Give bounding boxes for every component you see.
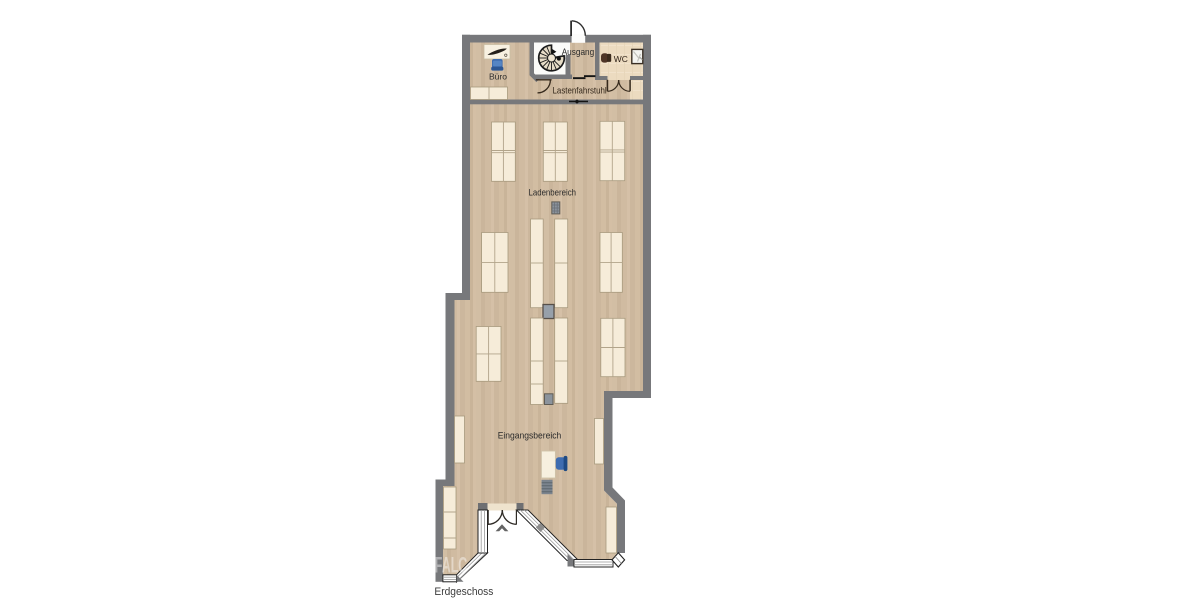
- svg-text:Ausgang: Ausgang: [562, 47, 595, 57]
- svg-text:FALC: FALC: [435, 553, 468, 578]
- svg-text:Erdgeschoss: Erdgeschoss: [434, 586, 493, 598]
- svg-text:Eingangsbereich: Eingangsbereich: [498, 430, 562, 440]
- svg-text:Lastenfahrstuhl: Lastenfahrstuhl: [553, 86, 607, 96]
- svg-text:WC: WC: [614, 54, 628, 64]
- svg-text:Ladenbereich: Ladenbereich: [529, 188, 577, 198]
- svg-text:Büro: Büro: [489, 71, 507, 81]
